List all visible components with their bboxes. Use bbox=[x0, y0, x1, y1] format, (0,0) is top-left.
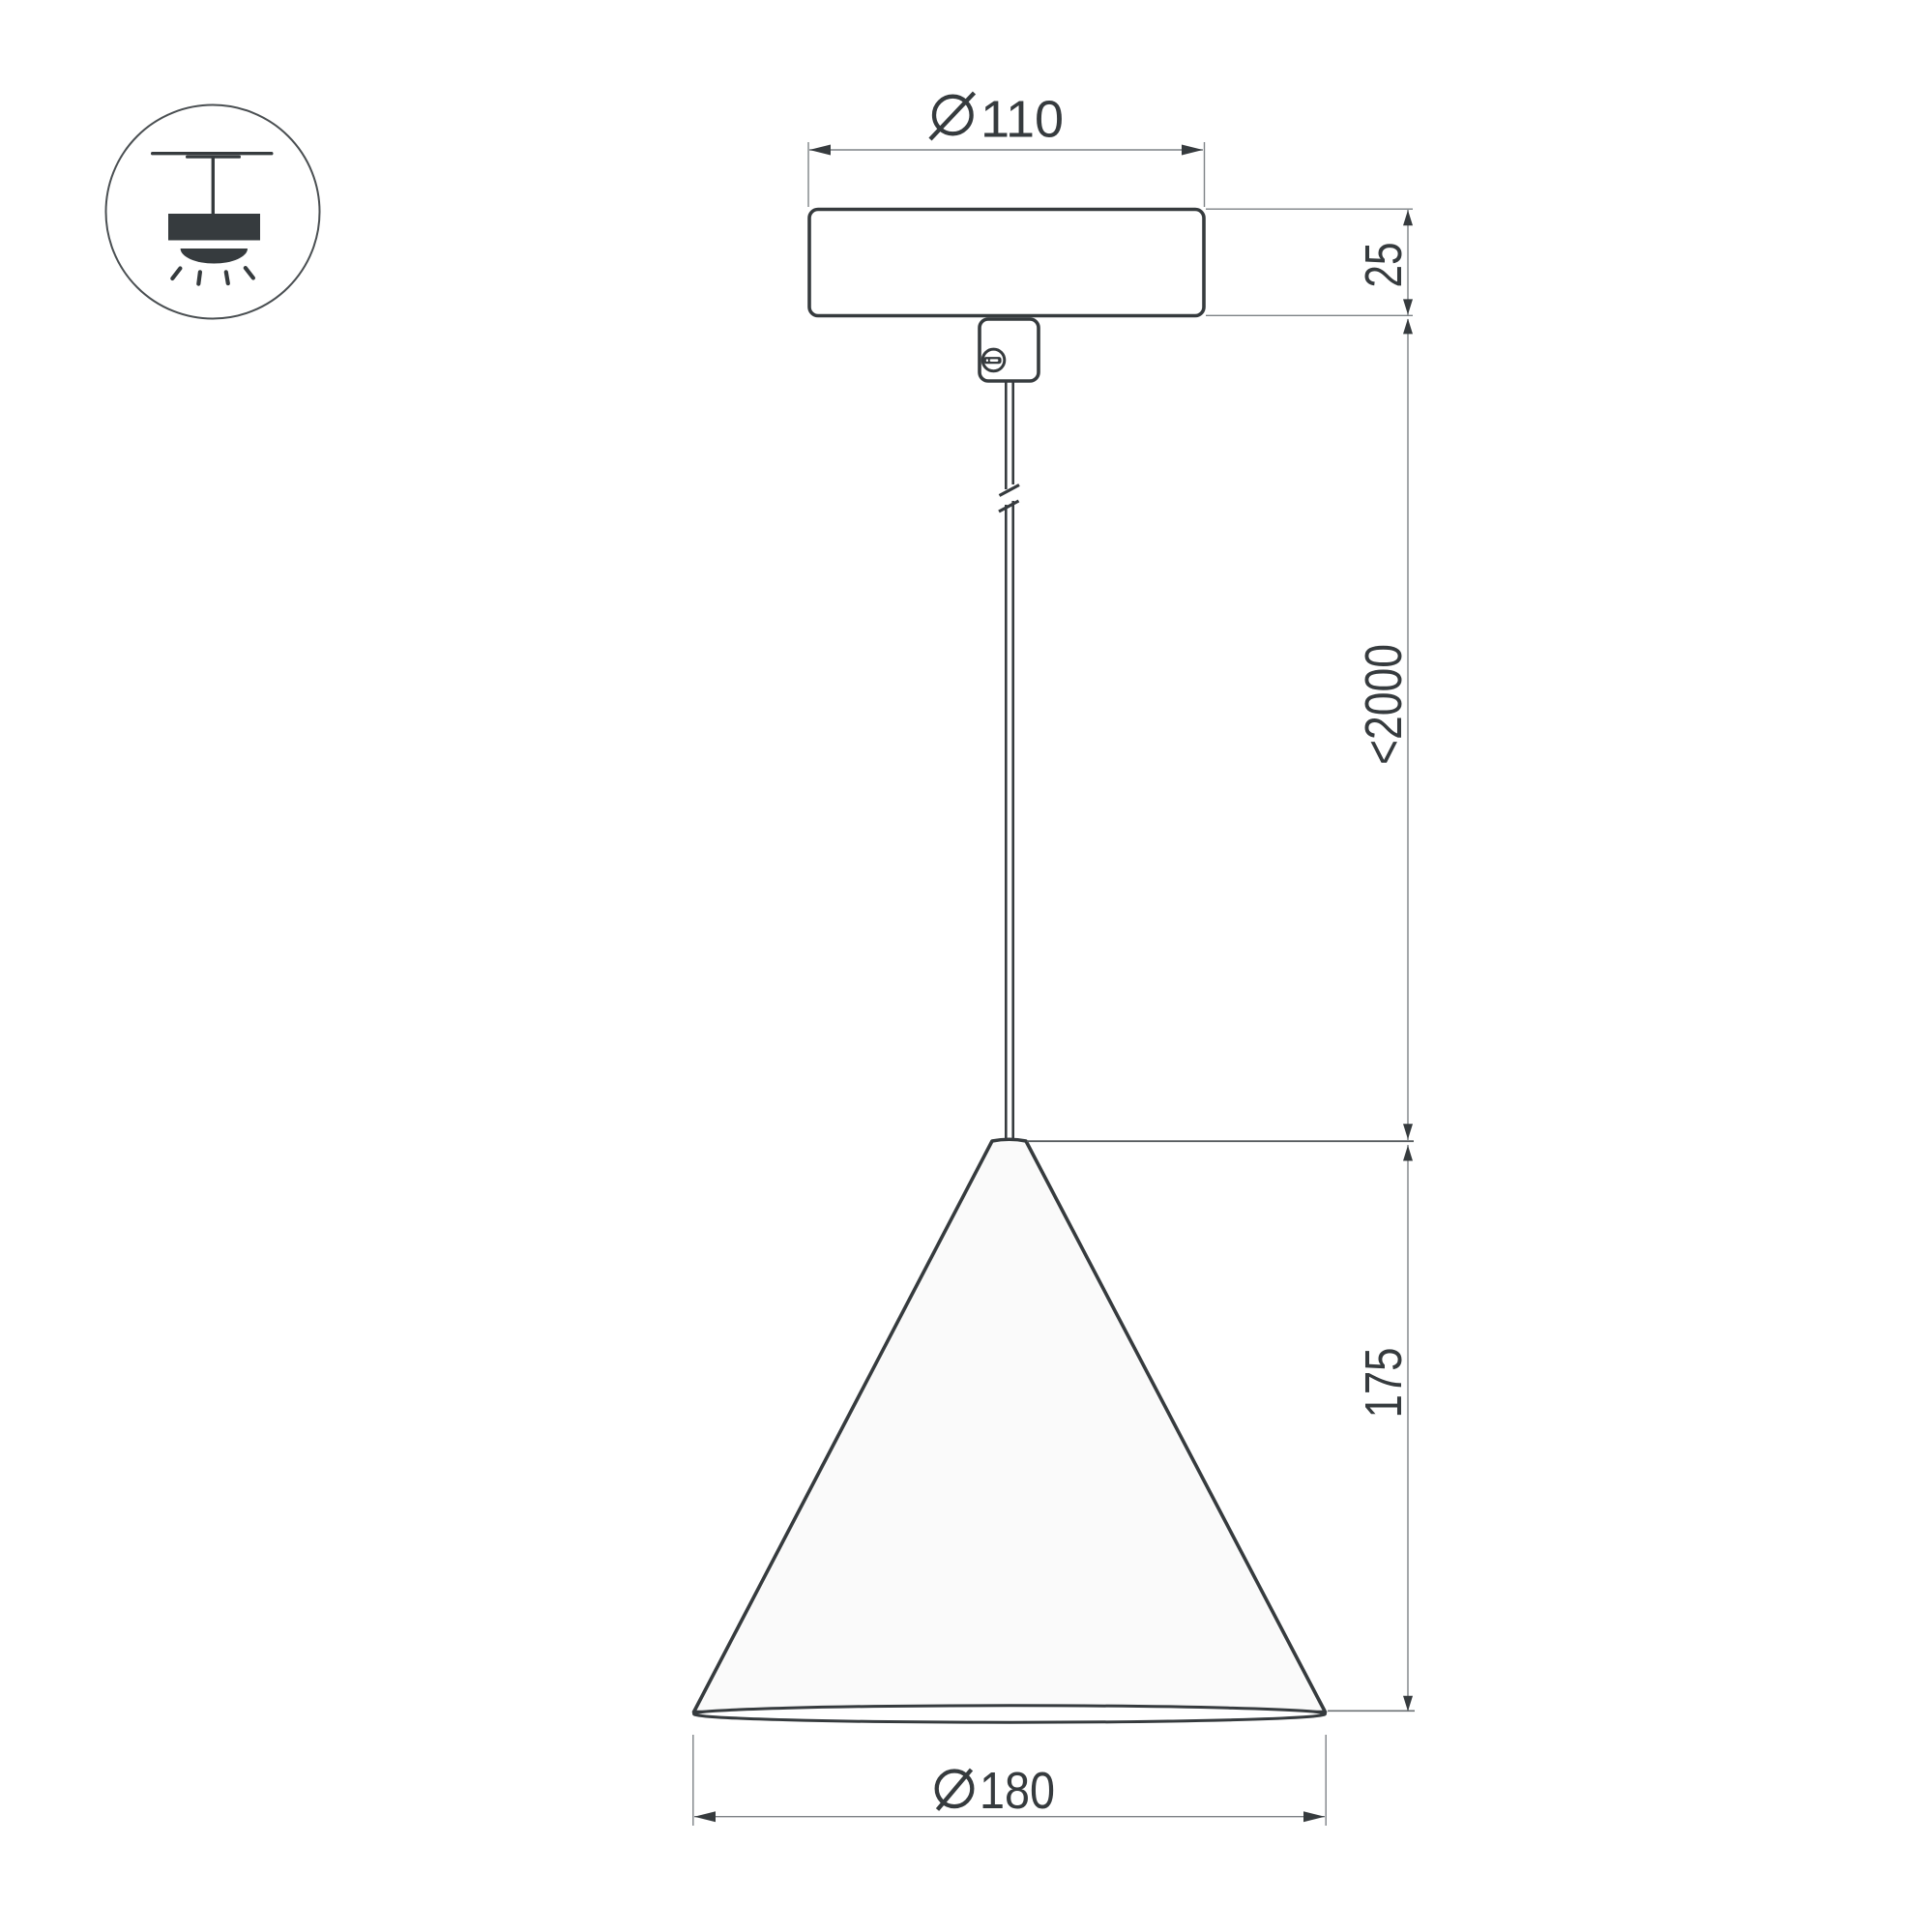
svg-text:180: 180 bbox=[980, 1762, 1055, 1820]
svg-text:110: 110 bbox=[981, 91, 1064, 149]
svg-text:<2000: <2000 bbox=[1355, 644, 1413, 765]
svg-text:175: 175 bbox=[1355, 1348, 1413, 1419]
svg-text:25: 25 bbox=[1355, 243, 1413, 288]
